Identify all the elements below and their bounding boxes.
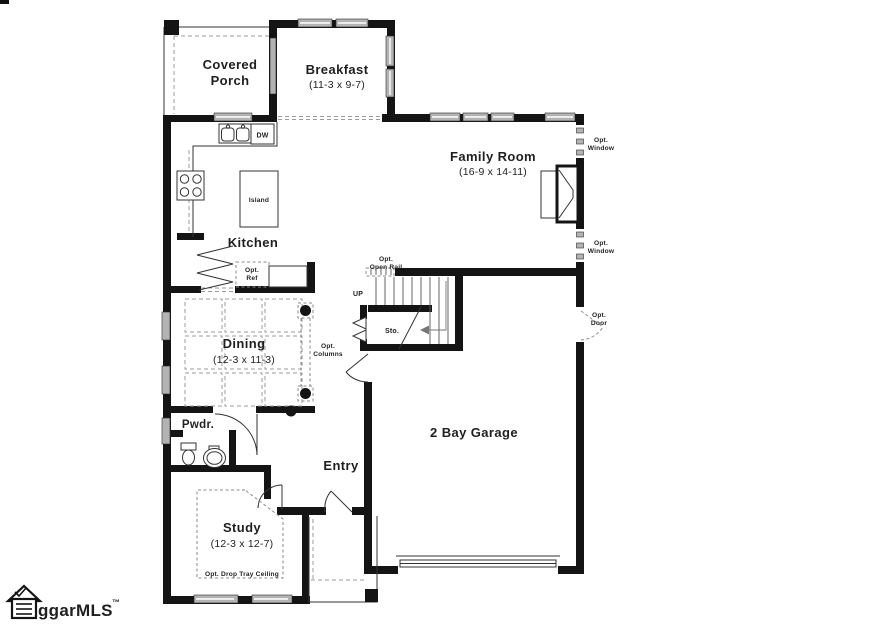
mls-logo-tm: ™ bbox=[112, 598, 120, 607]
opt-window-hatch-2 bbox=[577, 232, 584, 259]
wall-entry-front-right bbox=[352, 507, 372, 515]
stoop-post bbox=[365, 589, 378, 602]
dims-family-room: (16-9 x 14-11) bbox=[459, 166, 527, 178]
garage-door bbox=[396, 556, 560, 567]
column-2 bbox=[300, 388, 311, 399]
kitchen-counter-run bbox=[269, 266, 307, 287]
wall-study-jog bbox=[264, 465, 271, 499]
dining-ceiling-grid bbox=[185, 299, 302, 406]
wall-storage-mid bbox=[368, 305, 432, 312]
label-opt-columns: Opt. bbox=[321, 343, 335, 350]
svg-text:Porch: Porch bbox=[211, 73, 250, 88]
svg-text:Window: Window bbox=[588, 145, 615, 152]
wall-garage-north bbox=[395, 268, 583, 276]
label-study: Study bbox=[223, 520, 261, 535]
floorplan-svg: DW Island Opt. Ref bbox=[0, 0, 894, 628]
label-kitchen: Kitchen bbox=[228, 235, 278, 250]
front-door bbox=[325, 491, 352, 512]
label-breakfast: Breakfast bbox=[306, 62, 369, 77]
label-family-room: Family Room bbox=[450, 149, 536, 164]
opt-ref-label: Opt. bbox=[245, 267, 259, 274]
label-opt-door: Opt. bbox=[592, 312, 606, 319]
storage-bifold-door bbox=[353, 317, 366, 342]
window-porch-breakfast bbox=[270, 38, 276, 94]
optional-openings bbox=[575, 125, 603, 342]
floorplan-image: DW Island Opt. Ref bbox=[0, 0, 894, 628]
stair-direction-arrow bbox=[420, 326, 429, 335]
wall-dining-bottom-b bbox=[256, 406, 315, 413]
doors bbox=[215, 354, 368, 512]
label-up: UP bbox=[353, 291, 363, 298]
wall-dining-bottom-a bbox=[163, 406, 213, 413]
svg-text:Ref: Ref bbox=[246, 275, 258, 282]
fireplace-hearth bbox=[541, 171, 558, 218]
label-covered-porch: Covered bbox=[203, 57, 258, 72]
garage-entry-door bbox=[346, 354, 368, 382]
wall-garage-bottom-left bbox=[364, 566, 398, 574]
powder-fixtures bbox=[181, 443, 226, 468]
wall-garage-left bbox=[364, 382, 372, 574]
toilet-tank bbox=[181, 443, 196, 450]
label-opt-open-rail: Opt. bbox=[379, 256, 393, 263]
label-powder: Pwdr. bbox=[182, 419, 214, 431]
label-garage: 2 Bay Garage bbox=[430, 425, 518, 440]
label-opt-window-2: Opt. bbox=[594, 240, 608, 247]
dims-study: (12-3 x 12-7) bbox=[211, 538, 274, 550]
dims-dining: (12-3 x 11-3) bbox=[213, 354, 275, 366]
wall-left-exterior bbox=[163, 115, 171, 604]
window-powder bbox=[162, 418, 170, 444]
mls-house-icon bbox=[8, 586, 40, 618]
toilet-bowl bbox=[183, 450, 195, 465]
wall-stub-kitchen bbox=[307, 262, 315, 293]
stair-treads-lower bbox=[430, 277, 448, 344]
mls-logo-text: ggarMLS bbox=[38, 601, 113, 620]
label-entry: Entry bbox=[323, 458, 359, 473]
porch-post bbox=[164, 20, 179, 35]
opt-window-hatch-1 bbox=[577, 128, 584, 155]
wall-stair-right bbox=[455, 268, 463, 351]
svg-text:Window: Window bbox=[588, 248, 615, 255]
kitchen-fixtures: DW Island Opt. Ref bbox=[177, 122, 307, 290]
stair-treads-upper bbox=[376, 277, 421, 305]
column-3 bbox=[286, 406, 297, 417]
corner-artifact bbox=[0, 0, 9, 4]
wall-study-right bbox=[302, 507, 309, 604]
label-tray-ceiling: Opt. Drop Tray Ceiling bbox=[205, 571, 279, 578]
svg-text:Open Rail: Open Rail bbox=[370, 264, 403, 271]
svg-text:Door: Door bbox=[591, 320, 607, 327]
svg-text:Columns: Columns bbox=[313, 351, 343, 358]
wall-storage-bottom bbox=[360, 344, 463, 351]
kitchen-sink bbox=[219, 124, 251, 143]
island-label: Island bbox=[249, 197, 269, 204]
wall-entry-front-left bbox=[277, 507, 326, 515]
wall-pantry bbox=[177, 233, 204, 240]
mls-logo: ggarMLS ™ bbox=[8, 586, 120, 620]
fireplace bbox=[541, 166, 578, 222]
window-dining-1 bbox=[162, 312, 170, 340]
walls bbox=[163, 20, 584, 604]
label-storage: Sto. bbox=[385, 328, 399, 335]
label-opt-window-1: Opt. bbox=[594, 137, 608, 144]
dishwasher-label: DW bbox=[256, 133, 268, 140]
window-dining-2 bbox=[162, 366, 170, 394]
column-1 bbox=[300, 305, 311, 316]
dims-breakfast: (11-3 x 9-7) bbox=[309, 79, 365, 91]
label-dining: Dining bbox=[223, 336, 266, 351]
fireplace-box bbox=[557, 166, 578, 222]
stair-break-line bbox=[399, 307, 421, 349]
pantry-shelves bbox=[197, 246, 233, 290]
